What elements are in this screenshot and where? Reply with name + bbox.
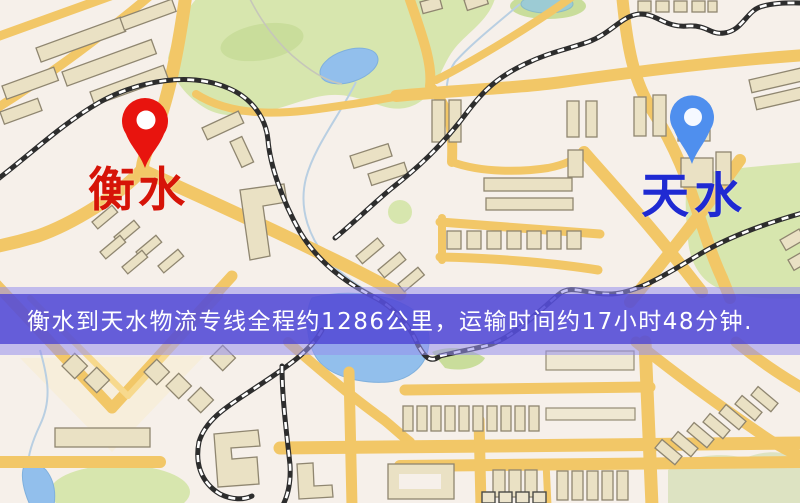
- destination-city-label: 天水: [641, 172, 747, 220]
- route-info-banner: 衡水到天水物流专线全程约1286公里，运输时间约17小时48分钟.: [0, 287, 800, 355]
- map-canvas[interactable]: [0, 0, 800, 503]
- origin-city-label: 衡水: [88, 167, 188, 214]
- route-info-banner-inner: 衡水到天水物流专线全程约1286公里，运输时间约17小时48分钟.: [0, 294, 800, 344]
- route-info-text: 衡水到天水物流专线全程约1286公里，运输时间约17小时48分钟.: [0, 302, 753, 336]
- origin-pin-icon[interactable]: [122, 98, 168, 168]
- map-screenshot: 衡水 天水 衡水到天水物流专线全程约1286公里，运输时间约17小时48分钟.: [0, 0, 800, 503]
